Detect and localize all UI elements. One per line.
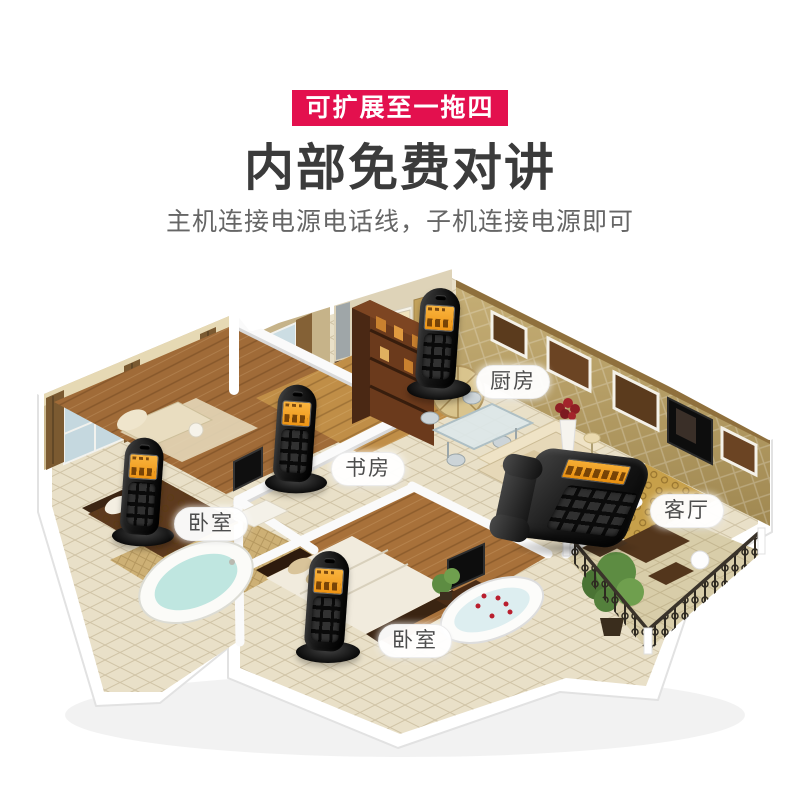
room-label-bedroom-left: 卧室: [174, 507, 248, 541]
handset-body: [415, 287, 462, 390]
room-label-bedroom-bottom: 卧室: [378, 624, 452, 658]
handset-screen: [128, 453, 159, 480]
handset-screen: [313, 567, 345, 595]
handset-body: [304, 550, 351, 653]
handset-screen: [281, 400, 312, 427]
handset-keypad: [310, 596, 341, 643]
room-label-kitchen: 厨房: [476, 365, 550, 399]
handset-keypad: [126, 481, 156, 526]
floor-lamp: [584, 433, 600, 443]
handset-body: [272, 383, 317, 482]
cordless-phone-bedroom-left: [111, 438, 175, 547]
cordless-phone-kitchen: [406, 288, 472, 400]
balcony-table: [691, 551, 709, 569]
plant-pot: [600, 618, 624, 636]
earpiece: [324, 558, 335, 564]
cordless-phone-study: [264, 385, 328, 494]
handset-keypad: [279, 428, 309, 473]
earpiece: [292, 391, 303, 397]
room-label-living-room: 客厅: [650, 494, 724, 528]
earpiece: [435, 295, 446, 301]
cordless-phone-bedroom-bottom: [295, 551, 361, 663]
room-label-study: 书房: [331, 452, 405, 486]
handset-keypad: [421, 333, 452, 380]
product-promo-page: 可扩展至一拖四 内部免费对讲 主机连接电源电话线，子机连接电源即可: [0, 0, 800, 800]
handset-screen: [424, 304, 456, 332]
handset-body: [119, 436, 164, 535]
apartment-illustration: [0, 0, 800, 800]
corded-phone-living-room: [498, 446, 640, 552]
apartment-scene: 厨房 书房 卧室 客厅 卧室: [0, 0, 800, 800]
earpiece: [139, 444, 150, 450]
